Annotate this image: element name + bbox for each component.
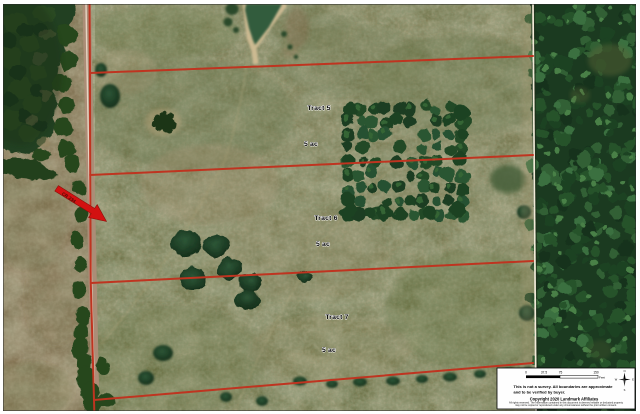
svg-text:Tract 7: Tract 7 [325,314,348,321]
svg-text:37.5: 37.5 [541,371,547,375]
svg-text:5 ac: 5 ac [304,141,318,148]
svg-text:and to be verified by buyer.: and to be verified by buyer. [514,389,566,394]
svg-text:5 ac: 5 ac [322,347,336,354]
svg-text:Tract 5: Tract 5 [307,105,330,112]
svg-text:Feet: Feet [599,376,605,380]
svg-text:75: 75 [559,371,563,375]
svg-text:5 ac: 5 ac [316,241,330,248]
svg-text:0: 0 [525,371,527,375]
svg-text:Tract 6: Tract 6 [314,215,337,222]
svg-text:E: E [632,378,634,382]
svg-text:150: 150 [593,371,599,375]
svg-text:S: S [624,388,626,392]
svg-text:N: N [624,369,626,373]
svg-text:may not be copied or reproduce: may not be copied or reproduced under an… [515,404,617,407]
